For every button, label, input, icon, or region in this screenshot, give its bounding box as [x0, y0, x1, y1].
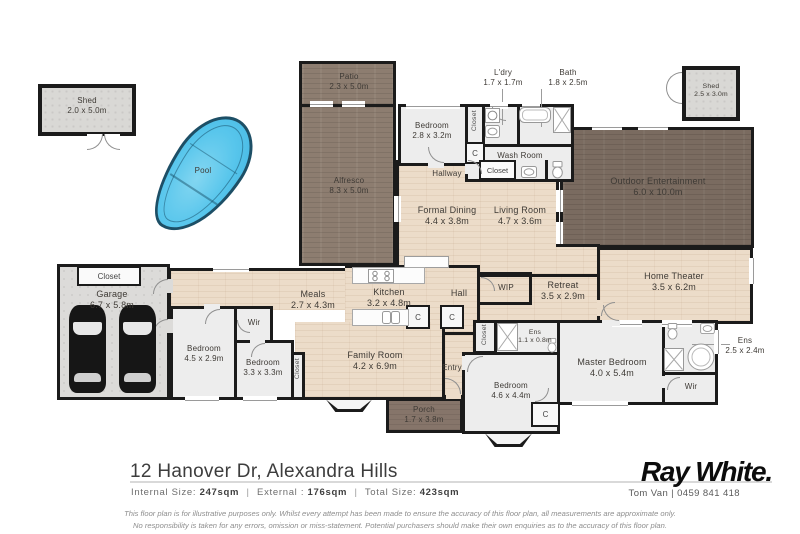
room-dims: 4.0 x 5.4m [577, 368, 646, 379]
window [556, 222, 563, 244]
car-icon [119, 305, 156, 393]
room-label: Home Theater [644, 271, 704, 282]
shower-icon [664, 348, 684, 371]
room-dims: 2.5 x 2.4m [725, 346, 764, 356]
bay-window [477, 431, 540, 447]
room-label: Meals [291, 289, 335, 300]
room-dims: 2.0 x 5.0m [67, 106, 106, 116]
window [394, 196, 401, 222]
bathtub-round-icon [687, 343, 715, 371]
door-gap [428, 162, 444, 168]
room-dims: 3.5 x 2.9m [541, 291, 585, 302]
separator: | [247, 487, 250, 498]
closet-label: Closet [481, 324, 488, 345]
wir-label: Wir [248, 318, 261, 328]
room-dims: 1.8 x 2.5m [548, 78, 587, 88]
room-label: Shed [67, 96, 106, 106]
door-gap [662, 376, 667, 388]
room-label: Bedroom [243, 358, 282, 368]
room-dims: 1.7 x 3.8m [404, 415, 443, 425]
room-dims: 4.4 x 3.8m [418, 216, 477, 227]
closet-label: Closet [294, 358, 301, 379]
room-dims: 1.7 x 1.7m [483, 78, 522, 88]
window [243, 396, 277, 403]
room-label: Ens [725, 336, 764, 346]
room-label: Shed [694, 83, 728, 91]
room-dims: 2.5 x 3.0m [694, 91, 728, 99]
shed-right-door-arc [666, 88, 682, 104]
window [406, 102, 460, 109]
c-closet: C [406, 305, 430, 329]
room-label: L'dry [483, 68, 522, 78]
room-label: Porch [404, 405, 443, 415]
room-dims: 6.7 x 5.8m [90, 300, 134, 311]
brand-logo: Ray White. [641, 456, 772, 488]
disclaimer-line2: No responsibility is taken for any error… [0, 521, 800, 530]
door-gap [204, 304, 220, 310]
page-title: 12 Hanover Dr, Alexandra Hills [130, 461, 398, 483]
room-label: Garage [90, 289, 134, 300]
room-dims: 2.7 x 4.3m [291, 300, 335, 311]
toilet-icon [551, 161, 564, 179]
room-label: Bath [548, 68, 587, 78]
window [714, 330, 721, 354]
washroom-label: Wash Room [497, 151, 543, 161]
floor-plan-page: Shed2.0 x 5.0m Pool Patio2.3 x 5.0m Alfr… [0, 0, 800, 534]
sliding-door [310, 101, 333, 107]
door-gap [597, 300, 603, 316]
door-gap [602, 320, 620, 326]
disclaimer-line1: This floor plan is for illustrative purp… [0, 509, 800, 518]
room-label: Living Room [494, 205, 546, 216]
pool-label: Pool [195, 166, 212, 176]
room-dims: 3.5 x 6.2m [644, 282, 704, 293]
shower-icon [497, 323, 518, 351]
door-gap [250, 338, 265, 344]
door-gap [462, 356, 467, 370]
window [213, 265, 249, 272]
closet-label: Closet [487, 166, 508, 175]
bathtub-icon [519, 107, 551, 123]
wip-label: WIP [498, 283, 514, 293]
shed-right-door-arc [666, 72, 682, 88]
room-dims: 2.8 x 3.2m [412, 131, 451, 141]
door-gap [167, 319, 173, 333]
toilet-icon [666, 323, 679, 340]
sliding-door [342, 101, 365, 107]
garage-closet-box: Closet [77, 266, 141, 286]
car-icon [69, 305, 106, 393]
room-dims: 2.3 x 5.0m [329, 82, 368, 92]
window [749, 258, 756, 284]
kitchen-island [352, 309, 409, 326]
separator: | [354, 487, 357, 498]
room-label: Bedroom [491, 381, 530, 391]
c-closet: C [531, 402, 560, 427]
c-label: C [449, 313, 455, 322]
hall-label: Hall [451, 288, 467, 299]
room-dims: 8.3 x 5.0m [329, 186, 368, 196]
door-gap [446, 393, 461, 399]
hallway-label: Hallway [432, 169, 461, 179]
room-label: Kitchen [367, 287, 411, 298]
room-label: Family Room [347, 350, 402, 361]
size-value: 176sqm [308, 487, 348, 498]
agent-contact: Tom Van | 0459 841 418 [629, 488, 740, 499]
room-label: Patio [329, 72, 368, 82]
sink-icon [382, 311, 400, 324]
c-label: C [415, 313, 421, 322]
size-label: External : [257, 487, 304, 498]
size-value: 423sqm [420, 487, 460, 498]
c-label: C [543, 410, 549, 419]
wir-label: Wir [685, 382, 698, 392]
size-label: Internal Size: [131, 487, 196, 498]
shed-left-door-arc [87, 134, 103, 150]
room-dims: 3.3 x 3.3m [243, 368, 282, 378]
door-gap [167, 279, 173, 293]
room-label: Ens [518, 329, 552, 337]
size-label: Total Size: [365, 487, 417, 498]
closet-label: Closet [471, 110, 478, 131]
room-label: Master Bedroom [577, 357, 646, 368]
entry-corridor [442, 352, 464, 398]
size-summary: Internal Size: 247sqm | External : 176sq… [131, 487, 459, 498]
size-value: 247sqm [200, 487, 240, 498]
window [592, 124, 622, 130]
stove-icon [368, 269, 394, 283]
shower-icon [553, 107, 571, 133]
c-closet: C [440, 305, 464, 329]
washer-icon [485, 108, 500, 123]
room-label: Formal Dining [418, 205, 477, 216]
window [556, 190, 563, 212]
window [185, 396, 219, 403]
wall-stub [545, 160, 548, 182]
sink-icon [521, 166, 537, 178]
room-dims: 3.2 x 4.8m [367, 298, 411, 309]
room-dims: 4.2 x 6.9m [347, 361, 402, 372]
room-label: Retreat [541, 280, 585, 291]
room-dims: 1.1 x 0.8m [518, 337, 552, 345]
closet-label: Closet [98, 272, 121, 281]
room-label: Outdoor Entertainment [610, 176, 705, 187]
c-label: C [472, 149, 478, 158]
bay-window [318, 397, 380, 412]
room-label: Bedroom [184, 344, 223, 354]
sink-icon [700, 323, 715, 334]
entry-label: Entry [442, 363, 462, 373]
washroom-closet-box: Closet [479, 160, 516, 180]
room-dims: 4.5 x 2.9m [184, 354, 223, 364]
room-label: Alfresco [329, 176, 368, 186]
laundry-tub-icon [485, 125, 500, 138]
window [638, 124, 668, 130]
room-dims: 6.0 x 10.0m [610, 187, 705, 198]
shed-left-door-arc [104, 134, 120, 150]
room-dims: 4.6 x 4.4m [491, 391, 530, 401]
room-dims: 4.7 x 3.6m [494, 216, 546, 227]
window [572, 401, 628, 408]
room-label: Bedroom [412, 121, 451, 131]
